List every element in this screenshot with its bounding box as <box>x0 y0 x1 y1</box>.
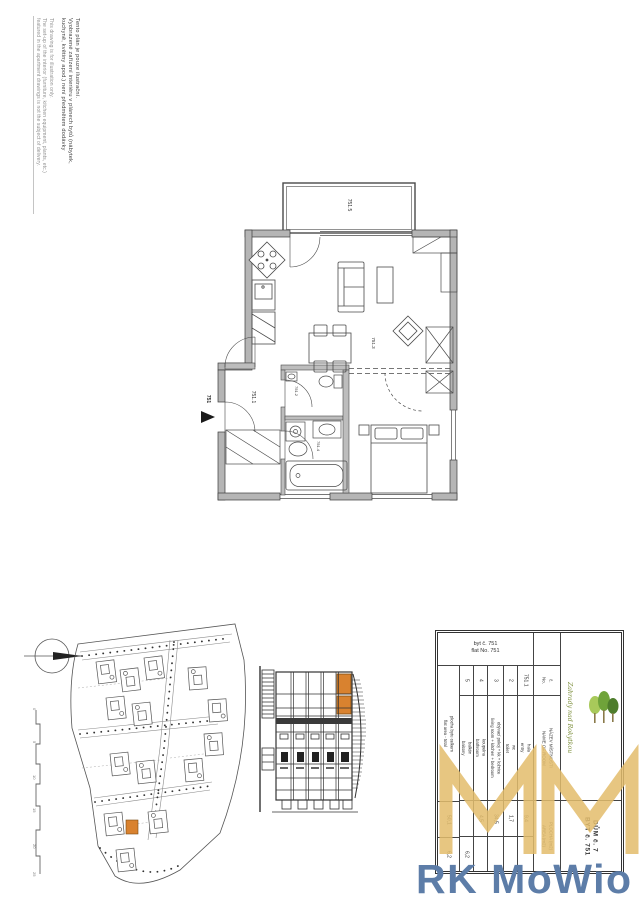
disclaimer-text: Tento plán je pouze ilustrační. Vyobraze… <box>35 18 81 214</box>
flat-caption: byt č. 751 flat No. 751 <box>438 633 533 666</box>
scale-tick: 25 <box>32 872 37 877</box>
disclaimer-cs-line: Tento plán je pouze ilustrační. <box>73 18 80 214</box>
room-no: 3 <box>493 679 499 682</box>
bathroom-fixtures <box>286 421 347 490</box>
room-no: 5 <box>464 679 470 682</box>
hatch-strip <box>352 674 366 798</box>
disclaimer-cs-line: kuchyně, květiny apod.) není předmětem d… <box>59 18 66 214</box>
highlighted-unit-site <box>126 820 138 834</box>
disclaimer-cs-line: Vyobrazené zařízení interiéru v plánech … <box>66 18 73 214</box>
interior-partitions <box>225 363 349 495</box>
hall-wardrobe <box>226 430 280 464</box>
buildings <box>96 656 227 872</box>
building-elevation <box>256 660 374 822</box>
dashed-partition <box>349 369 450 412</box>
label-hall: 751.1 <box>250 391 256 404</box>
bed <box>359 425 439 493</box>
facade-grid <box>272 672 358 812</box>
header-no-en: No. <box>540 677 547 684</box>
disclaimer-en-line: featured in the apartment drawings is no… <box>35 18 42 214</box>
scale-bar <box>36 710 40 874</box>
label-bath: 751.4 <box>316 441 321 452</box>
label-terrace: 751.5 <box>346 199 352 212</box>
wardrobes <box>426 327 453 393</box>
trees-icon <box>587 691 621 741</box>
scale-tick: 20 <box>32 844 37 849</box>
apartment-floor-plan: 751.5 751.1 751.2 751.4 751.3 751 <box>195 175 475 510</box>
disclaimer-en-line: The set-up of the interior (furniture, k… <box>41 18 48 214</box>
label-entry-unit: 751 <box>205 395 211 404</box>
sofa <box>338 262 393 312</box>
room-no: 751.1 <box>523 674 529 687</box>
entry-arrow-icon <box>201 411 215 423</box>
flat-caption-en: flat No. 751 <box>438 648 533 655</box>
label-living: 751.3 <box>371 337 376 349</box>
scale-tick: 5 <box>32 741 37 744</box>
header-no-cs: č. <box>547 677 554 684</box>
floorplan-document-page: { "disclaimer": { "cs": ["Tento plán je … <box>0 0 640 904</box>
highlighted-unit-elevation <box>337 674 351 694</box>
kitchen-fixtures <box>249 242 285 344</box>
armchair <box>393 316 423 346</box>
scale-tick: 10 <box>32 775 37 780</box>
room-no: 4 <box>478 679 484 682</box>
label-wc: 751.2 <box>294 386 299 397</box>
slat-panel <box>262 670 274 770</box>
agency-logo-text: RK MoWio <box>416 856 633 903</box>
site-plan: 0 5 10 15 20 25 <box>20 608 255 900</box>
room-no: 2 <box>508 679 514 682</box>
disclaimer-en-line: This drawing is for illustration only. <box>48 18 55 214</box>
mowio-watermark-icon <box>430 742 640 864</box>
flat-caption-cs: byt č. 751 <box>438 641 533 648</box>
scale-tick: 15 <box>32 808 37 813</box>
